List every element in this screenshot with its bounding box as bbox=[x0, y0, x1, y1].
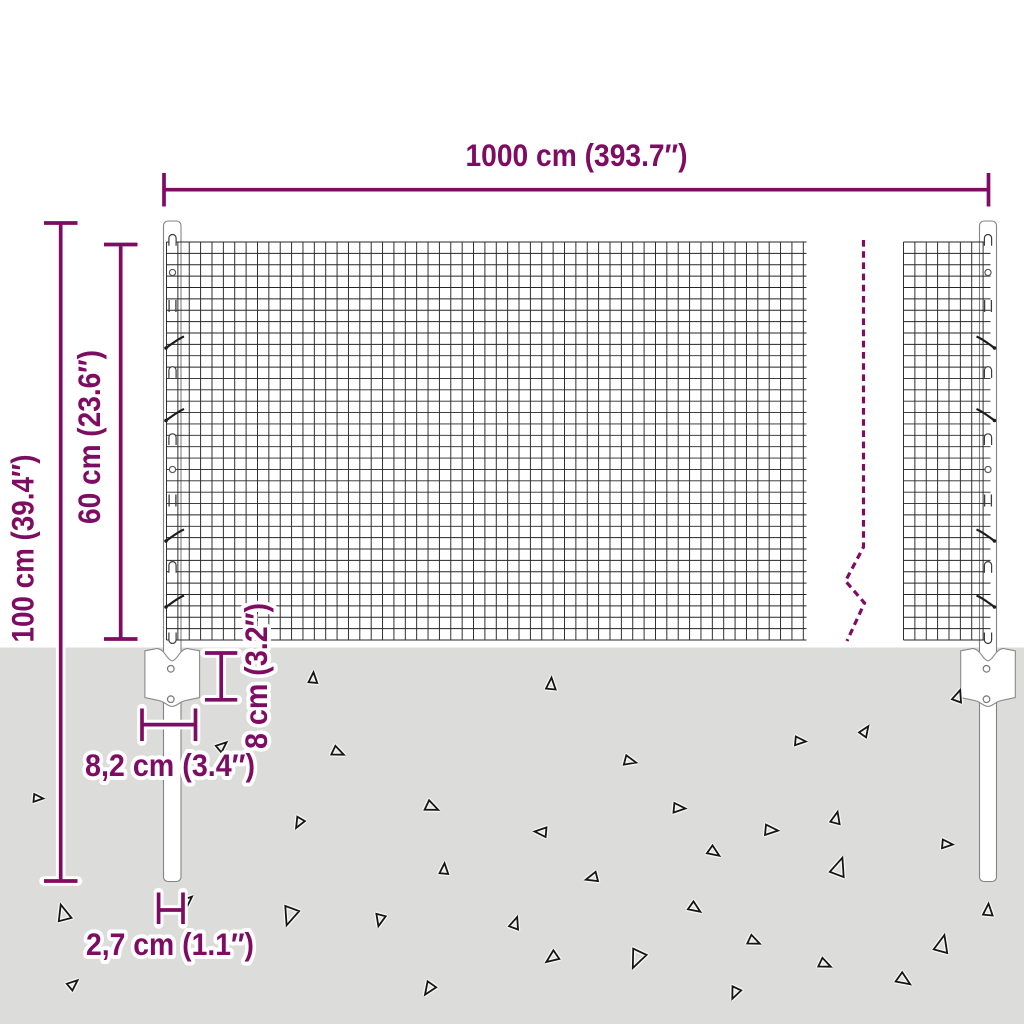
svg-text:2,7 cm (1.1″): 2,7 cm (1.1″) bbox=[86, 926, 254, 962]
svg-text:8,2 cm (3.4″): 8,2 cm (3.4″) bbox=[85, 747, 255, 783]
svg-text:1000 cm (393.7″): 1000 cm (393.7″) bbox=[466, 137, 688, 173]
svg-text:100 cm (39.4″): 100 cm (39.4″) bbox=[5, 455, 41, 643]
svg-text:8 cm (3.2″): 8 cm (3.2″) bbox=[238, 603, 274, 749]
svg-text:60 cm (23.6″): 60 cm (23.6″) bbox=[71, 350, 107, 524]
